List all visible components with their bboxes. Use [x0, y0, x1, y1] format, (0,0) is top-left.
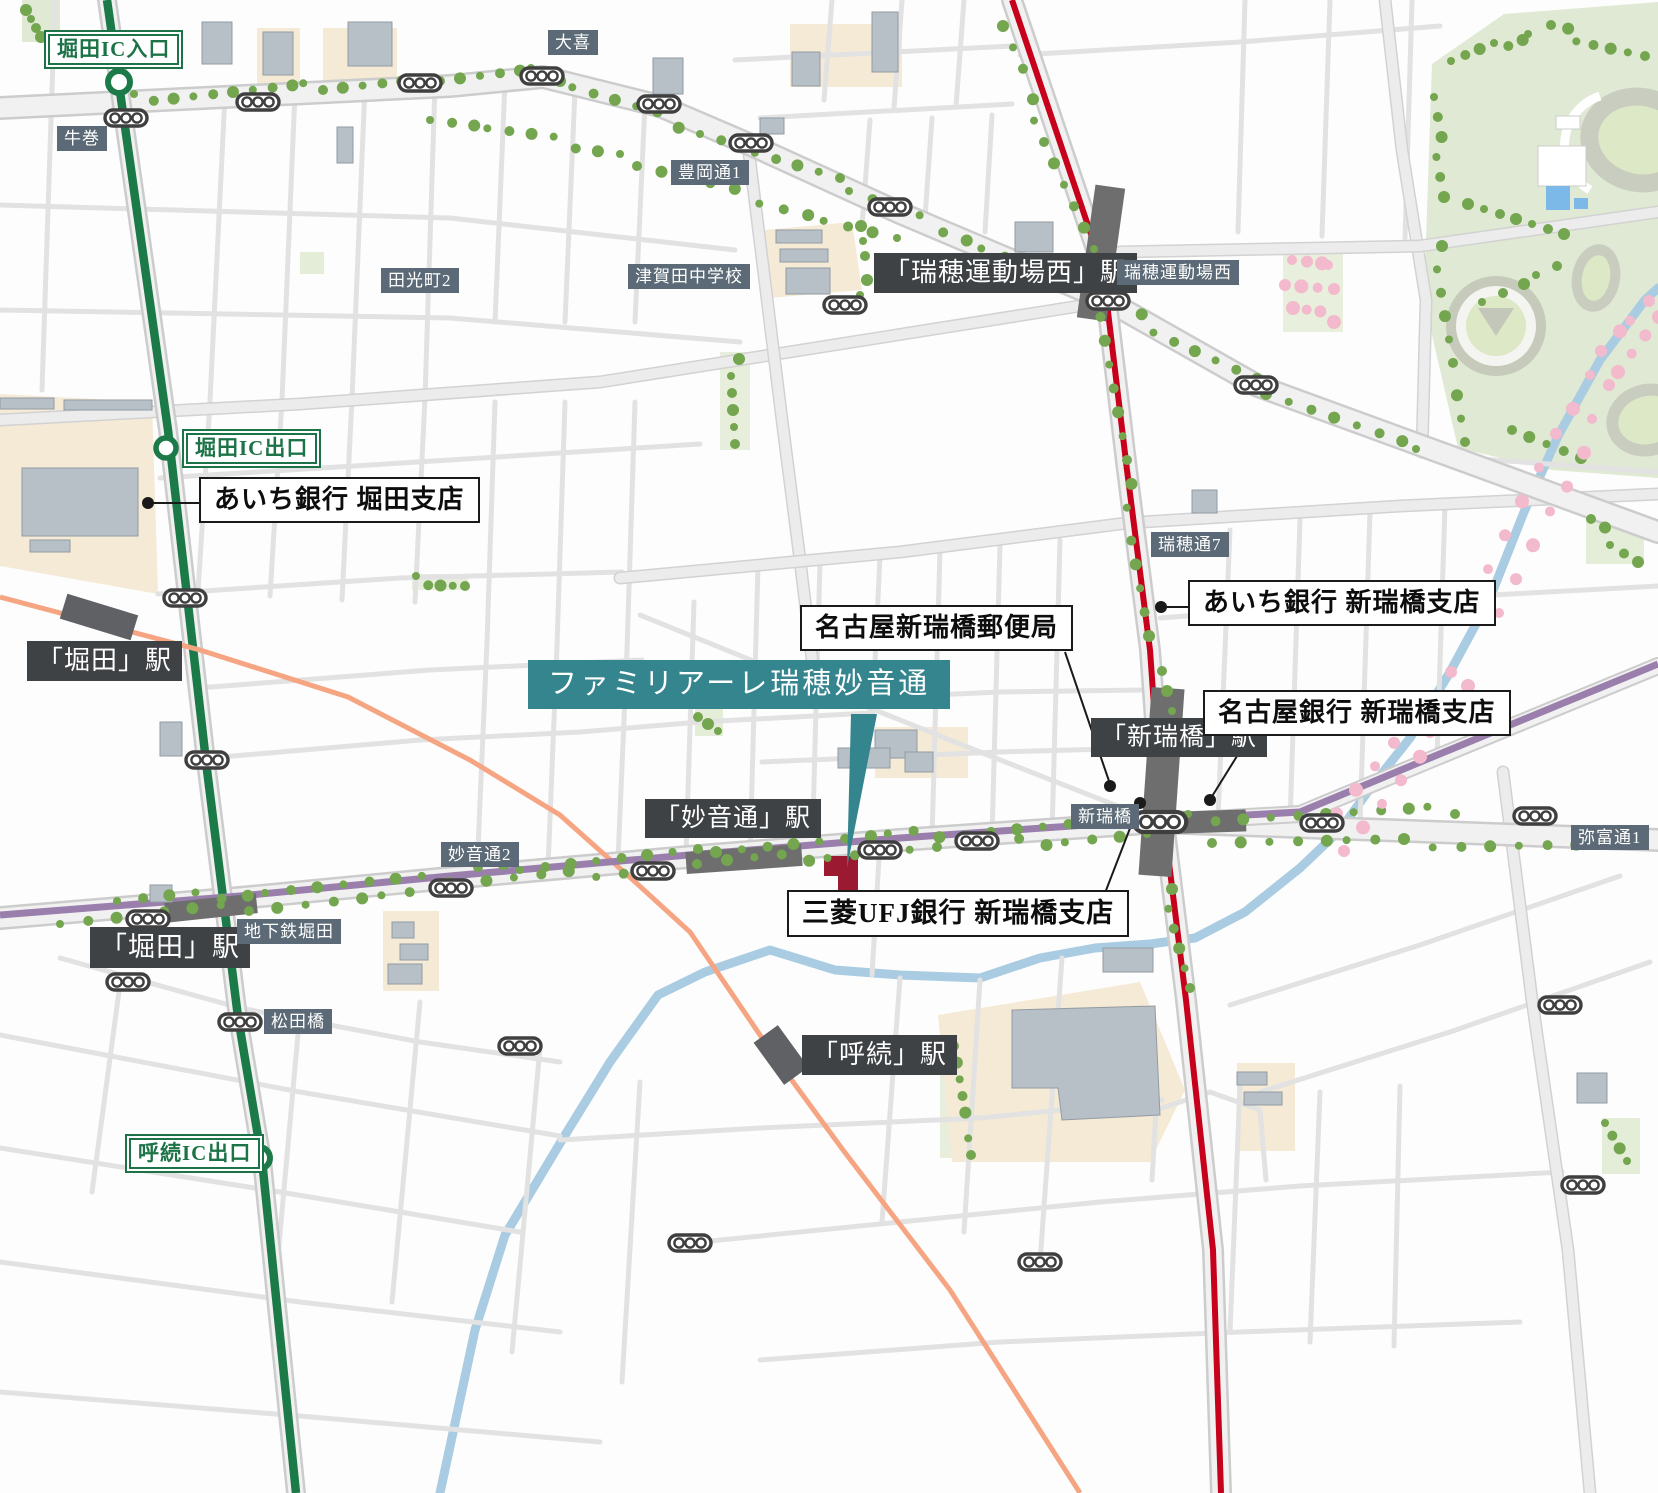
label-horita-ic-exit: 堀田IC出口 [182, 429, 321, 468]
label-mizuho-dori-7: 瑞穂通7 [1151, 532, 1229, 557]
label-myoon-dori-2: 妙音通2 [441, 842, 519, 867]
label-matsudabashi: 松田橋 [264, 1009, 332, 1034]
ic-circle-horita-in [108, 71, 130, 93]
label-horita-ic-entrance: 堀田IC入口 [44, 30, 183, 69]
label-oki: 大喜 [548, 30, 598, 55]
label-nagoya-bank-aratamabashi: 名古屋銀行 新瑞橋支店 [1203, 690, 1511, 736]
label-station-yobitsugi: 「呼続」駅 [802, 1035, 957, 1075]
ic-circle-horita-out [156, 438, 176, 458]
pool-small [1574, 198, 1588, 209]
label-nagoya-aratamabashi-post-office: 名古屋新瑞橋郵便局 [800, 605, 1073, 651]
label-station-horita-subway: 「堀田」駅 [90, 927, 250, 968]
access-map: 堀田IC入口 牛巻 大喜 豊岡通1 田光町2 津賀田中学校 「瑞穂運動場西」駅 … [0, 0, 1658, 1493]
map-canvas [0, 0, 1658, 1493]
label-aichi-bank-aratamabashi: あいち銀行 新瑞橋支店 [1188, 580, 1496, 626]
label-toyooka-dori-1: 豊岡通1 [671, 160, 749, 185]
label-mufg-bank-aratamabashi: 三菱UFJ銀行 新瑞橋支店 [787, 890, 1129, 937]
label-station-myoondori: 「妙音通」駅 [645, 799, 821, 838]
label-aratamabashi-crossing: 新瑞橋 [1071, 804, 1139, 829]
label-station-horita-meitetsu: 「堀田」駅 [27, 641, 182, 681]
label-chikatetsu-horita: 地下鉄堀田 [237, 919, 341, 944]
label-yobitsugi-ic-exit: 呼続IC出口 [125, 1134, 264, 1173]
label-aichi-bank-horita: あいち銀行 堀田支店 [199, 477, 480, 523]
label-ushimaki: 牛巻 [57, 126, 107, 151]
medium-roads [0, 0, 1658, 1493]
label-station-mizuho-undojo-nishi: 「瑞穂運動場西」駅 [874, 253, 1137, 293]
label-yatomi-dori-1: 弥富通1 [1571, 825, 1649, 850]
label-tamitsu-cho-2: 田光町2 [381, 268, 459, 293]
label-tsugata-junior-high: 津賀田中学校 [628, 264, 750, 289]
label-mizuho-undojo-nishi-crossing: 瑞穂運動場西 [1117, 260, 1239, 285]
label-property: ファミリアーレ瑞穂妙音通 [528, 660, 950, 709]
pool [1546, 186, 1570, 210]
